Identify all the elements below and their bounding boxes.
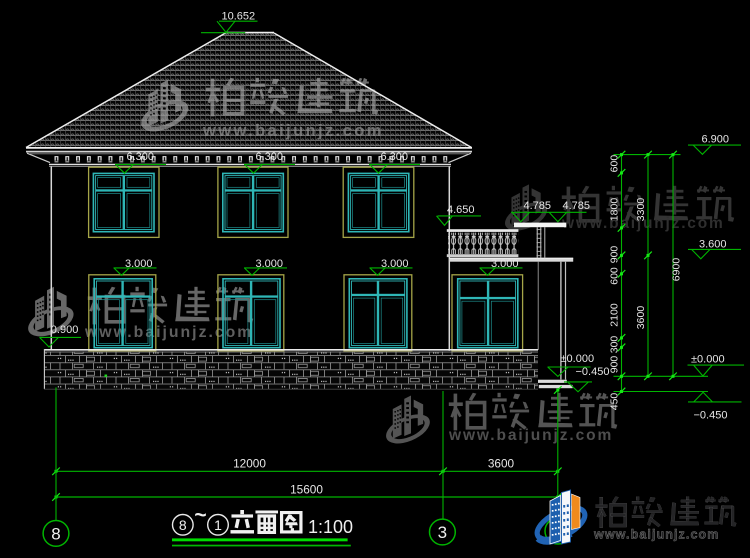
svg-text:3: 3 [438,523,447,542]
svg-text:8: 8 [51,525,60,544]
svg-text:www.baijunjz.com: www.baijunjz.com [448,427,613,444]
svg-text:300: 300 [609,336,621,354]
svg-text:www.baijunjz.com: www.baijunjz.com [84,324,253,341]
svg-text:6.300: 6.300 [256,151,284,163]
svg-text:6.300: 6.300 [127,151,155,163]
svg-text:−0.450: −0.450 [694,410,728,422]
svg-text:3.600: 3.600 [699,239,727,251]
svg-text:3300: 3300 [635,198,647,222]
svg-text:900: 900 [609,246,621,264]
svg-text:−0.450: −0.450 [576,366,610,378]
svg-text:±0.000: ±0.000 [561,353,595,365]
svg-text:900: 900 [609,356,621,374]
svg-text:6.300: 6.300 [381,151,409,163]
svg-text:600: 600 [609,155,621,173]
svg-text:www.baijunjz.com: www.baijunjz.com [593,528,719,542]
svg-text:±0.000: ±0.000 [691,354,725,366]
svg-text:4.785: 4.785 [563,200,591,212]
svg-text:4.785: 4.785 [524,200,552,212]
svg-text:8: 8 [179,517,187,533]
svg-text:6900: 6900 [671,258,683,282]
svg-text:450: 450 [609,393,621,411]
svg-text:4.650: 4.650 [447,204,475,216]
svg-text:15600: 15600 [290,483,323,497]
svg-text:1800: 1800 [609,198,621,222]
svg-text:1: 1 [214,517,222,533]
svg-text:~: ~ [194,504,206,527]
svg-text:2100: 2100 [609,303,621,327]
svg-text:6.900: 6.900 [702,134,730,146]
svg-text:0.900: 0.900 [51,324,79,336]
svg-text:600: 600 [609,267,621,285]
svg-text:www.baijunjz.com: www.baijunjz.com [202,122,384,140]
svg-text:3600: 3600 [488,456,515,470]
svg-text:12000: 12000 [233,456,266,470]
svg-text:1:100: 1:100 [308,517,353,537]
svg-text:3600: 3600 [635,306,647,330]
